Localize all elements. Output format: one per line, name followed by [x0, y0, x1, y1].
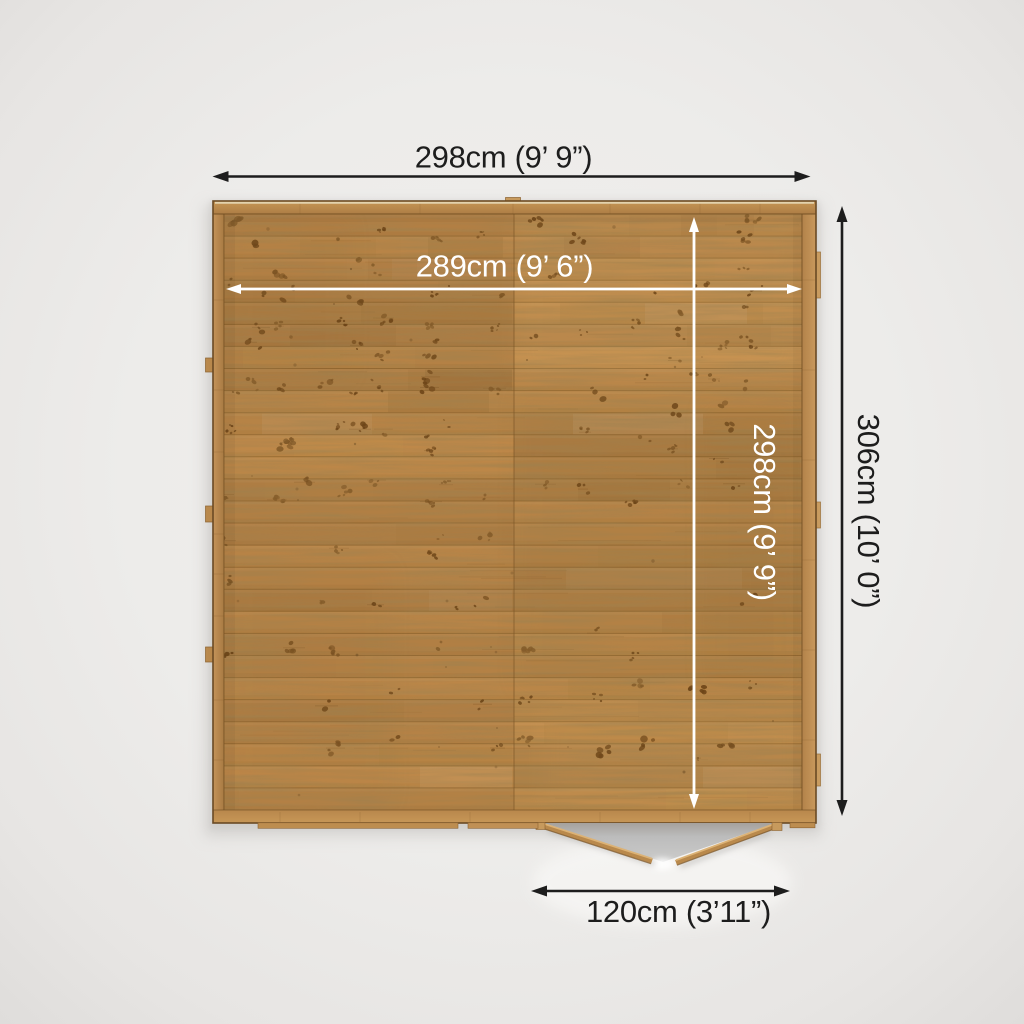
svg-text:120cm (3’11”): 120cm (3’11”)	[586, 894, 771, 929]
svg-text:289cm (9’ 6”): 289cm (9’ 6”)	[416, 249, 594, 284]
svg-text:298cm (9’ 9”): 298cm (9’ 9”)	[415, 140, 593, 175]
svg-text:298cm (9’ 9”): 298cm (9’ 9”)	[747, 423, 782, 601]
svg-text:306cm (10’ 0”): 306cm (10’ 0”)	[851, 414, 886, 609]
